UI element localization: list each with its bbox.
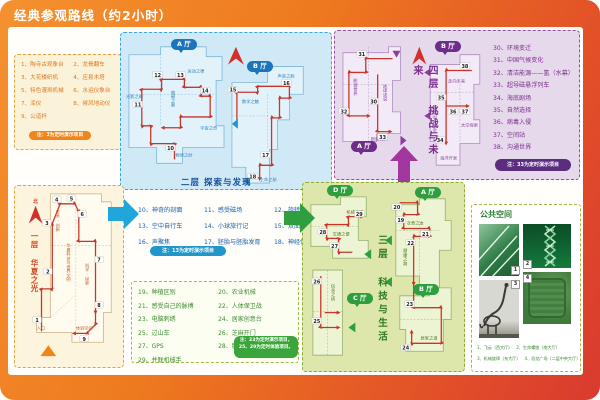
svg-text:7: 7 [97,258,101,264]
route-stop: 27 [330,242,340,249]
zone-label: 能源世界 [352,77,357,97]
svg-text:29: 29 [356,212,363,218]
hall-badge-a: A 厅 [171,39,197,50]
svg-text:12: 12 [154,73,161,79]
north-arrow-icon [412,47,426,65]
list-item: 37、空间站 [493,130,579,142]
zone-label: 走向未来 [448,77,466,84]
floor2-note-badge: 注：13为定时演示项目 [150,246,226,256]
floor1-exhibit-list: 1、陶寺古观象台 2、龙骨翻车 3、大花楼织机 4、应县木塔 5、特色灌溉机械 … [14,54,122,150]
svg-text:4: 4 [55,197,59,203]
escalator-icon [41,345,57,356]
caption: 2、生命螺旋（南大厅） [516,345,559,350]
list-item: 5、特色灌溉机械 [21,86,73,94]
zone-label: 衣食之本 [407,220,425,227]
route-stop: 1 [33,317,42,324]
list-item: 3、大花楼织机 [21,73,73,81]
hall-badge-b: B 厅 [247,61,273,72]
floor2-title: 二层 探索与发现 [181,176,251,188]
svg-text:13: 13 [177,73,184,79]
zone-label: 居家之道 [421,334,439,341]
public-space-title: 公共空间 [480,209,512,220]
flow-arrow-floor1-to-floor2 [108,198,140,230]
public-space-photos: 1 2 3 4 [479,222,575,340]
zone-label: 声音之韵 [278,72,295,79]
svg-text:8: 8 [97,303,101,309]
svg-text:31: 31 [358,52,365,58]
svg-text:1: 1 [35,318,39,324]
list-item: 27、GPS [138,341,218,350]
route-stop: 23 [405,301,415,308]
floor3-note-badge: 注：23为定时演示项目，25、29为定时体验项目。 [234,336,298,358]
caption: 3、机械旋律（东大厅） [477,356,520,361]
floor1-note-badge: 注：3为定时演示项目 [29,131,91,140]
svg-text:10: 10 [167,146,174,152]
north-arrow-icon [29,206,43,224]
list-item: 9、公道杯 [21,112,73,120]
list-item: 8、候风地动仪 [73,99,116,107]
zone-label: 太空探索 [461,122,478,129]
public-space-captions: 1、飞云（西大厅）2、生命螺旋（南大厅） 3、机械旋律（东大厅）4、恐龙广场（二… [477,342,579,364]
route-stop: 16 [281,79,291,86]
zone-label: 体验空间 [76,324,93,331]
zone-label: 信息之桥 [330,283,335,303]
route-stop: 14 [200,87,210,94]
list-item: 24、居家创意台 [218,314,292,323]
route-stop: 28 [318,229,328,236]
flow-arrow-floor2-to-floor3 [284,202,316,234]
svg-text:33: 33 [379,135,386,141]
svg-text:28: 28 [319,230,326,236]
hall-badge-b: B 厅 [435,41,461,52]
svg-text:11: 11 [134,103,141,109]
route-stop: 29 [354,211,364,218]
list-item: 20、农业机械 [218,287,292,296]
route-stop: 11 [133,101,143,108]
floor4-exhibit-list: 30、环境变迁 31、中国气候变化 32、清洁能源——氢（水幕） 33、超导磁悬… [493,43,579,155]
route-stop: 37 [460,108,470,115]
route-stop: 2 [43,268,52,275]
list-item: 38、沟通世界 [493,142,579,154]
zone-label: 物质之妙 [175,151,193,158]
north-arrow-icon [228,47,244,65]
route-stop: 8 [95,302,104,309]
list-item: 34、海底剧场 [493,93,579,105]
svg-text:21: 21 [422,232,429,238]
zone-label: 技术·创新 [55,208,61,233]
public-space-box: 公共空间 [471,204,581,372]
zone-label: 科学·探索 [84,262,90,286]
route-stop: 12 [153,72,163,79]
floor1-title: 一层 华夏之光 [29,232,40,302]
museum-route-map: 经典参观路线（约2小时） 1、陶寺古观象台 2、龙骨翻车 3、大花楼织机 4、应… [0,0,600,400]
floor2-panel: 光影之绚 电磁之奥 运动之律 宇宙之奇 物质之妙 数学之魅 声音之韵 生命之秘 … [120,32,332,190]
list-item: 17、胚胎与胚胎发育 [204,237,274,246]
floor4-panel: 能源世界 地球述说 新型材料 走向未来 基因·生命 太空探索 海洋开发 31 3… [334,30,580,180]
route-stop: 13 [175,72,185,79]
route-stop: 3 [42,220,51,227]
list-item: 36、病毒入侵 [493,117,579,129]
photo-tag: 3 [511,280,520,289]
route-stop: 10 [166,145,176,152]
caption: 1、飞云（西大厅） [477,345,512,350]
list-item: 13、空中自行车 [138,221,204,230]
route-stop: 4 [52,196,61,203]
route-stop: 26 [312,278,322,285]
svg-text:14: 14 [202,89,209,95]
route-stop: 33 [378,134,388,141]
route-stop: 9 [80,335,89,342]
route-stop: 21 [421,230,431,237]
svg-text:19: 19 [397,218,404,224]
zone-label: 海洋开发 [440,154,458,161]
list-item: 23、电脑刺绣 [138,314,218,323]
zone-label: 运动之律 [187,68,205,75]
hall-badge-a: A 厅 [351,141,377,152]
floor2-floorplan: 光影之绚 电磁之奥 运动之律 宇宙之奇 物质之妙 数学之魅 声音之韵 生命之秘 … [121,33,331,189]
route-stop: 24 [401,344,411,351]
svg-text:25: 25 [313,319,320,325]
route-stop: 36 [448,108,458,115]
photo-tag: 2 [523,260,532,269]
svg-text:5: 5 [70,196,74,202]
route-stop: 32 [339,108,349,115]
svg-text:32: 32 [340,109,347,115]
floor4-note-badge: 注：33为定时演示项目 [495,159,571,171]
route-stop: 15 [228,86,238,93]
svg-text:9: 9 [83,337,87,343]
escalator-icon [348,323,355,333]
route-stop: 38 [460,63,470,70]
list-item: 4、应县木塔 [73,73,116,81]
svg-text:17: 17 [262,153,269,159]
zone-label: 生命之秘 [260,176,278,183]
svg-text:37: 37 [461,109,468,115]
route-stop: 17 [261,151,271,158]
list-item: 10、神奇的剖面 [138,205,204,214]
route-stop: 31 [357,51,367,58]
route-stop: 20 [392,204,402,211]
photo-tag: 4 [523,274,532,283]
svg-text:16: 16 [283,81,290,87]
zone-label: 宇宙之奇 [200,125,218,132]
caption: 4、恐龙广场（二层中央大厅） [524,356,580,361]
svg-text:20: 20 [393,205,400,211]
hall-badge-c: C 厅 [347,293,373,304]
list-item: 1、陶寺古观象台 [21,60,73,68]
zone-label: 光影之绚 [126,93,144,100]
zone-label: 交通之便 [333,230,351,237]
svg-text:2: 2 [46,270,49,276]
list-item: 11、感受磁场 [204,205,274,214]
list-item: 30、环境变迁 [493,43,579,55]
floor3-exhibit-list: 19、种植区别 20、农业机械 21、感受自己的脉搏 22、人体保卫战 23、电… [131,281,299,363]
svg-text:27: 27 [331,244,338,250]
zone-label: 电磁之奥 [170,89,175,109]
floor3-title: 三层 科技与生活 [374,235,388,345]
hall-badge-a: A 厅 [415,187,441,198]
route-stop: 19 [396,217,406,224]
list-item: 31、中国气候变化 [493,55,579,67]
list-item: 35、自然选择 [493,105,579,117]
hall-badge-d: D 厅 [327,185,353,196]
list-item: 22、人体保卫战 [218,301,292,310]
svg-text:24: 24 [402,346,409,352]
svg-text:22: 22 [407,241,414,247]
svg-text:38: 38 [461,64,468,70]
svg-text:23: 23 [406,302,413,308]
route-stop: 22 [406,239,416,246]
flow-arrow-floor3-to-floor4 [390,146,418,182]
route-stop: 30 [369,98,379,105]
route-stop: 6 [78,211,87,218]
zone-label: 入口 [37,325,45,330]
svg-text:15: 15 [229,88,236,94]
escalator-icon [400,136,406,146]
list-item: 33、超导磁悬浮列车 [493,80,579,92]
list-item: 29、并联机械手 [138,355,218,364]
zone-label: 地球述说 [382,83,387,103]
hall-badge-b: B 厅 [413,284,439,295]
list-item: 7、浑仪 [21,99,73,107]
zone-label: 数学之魅 [242,98,260,105]
svg-text:6: 6 [81,212,85,218]
svg-text:30: 30 [370,100,377,106]
route-stop: 5 [67,195,76,202]
route-stop: 25 [312,318,322,325]
list-item: 14、小球旅行记 [204,221,274,230]
page-title: 经典参观路线（约2小时） [14,5,172,24]
list-item: 21、感受自己的脉搏 [138,301,218,310]
list-item: 6、水运仪象台 [73,86,116,94]
floor3-panel: 交通之便 机械之巧 衣食之本 健康之路 居家之道 信息之桥 20 19 21 2… [302,182,465,372]
list-item: 25、过山车 [138,328,218,337]
list-item: 32、清洁能源——氢（水幕） [493,68,579,80]
zone-label: 健康之路 [402,247,407,267]
svg-text:26: 26 [313,279,320,285]
photo-tag: 1 [511,266,520,275]
zone-label: 华夏科技与世界文明 [66,242,72,283]
route-stop: 7 [95,256,104,263]
svg-text:3: 3 [45,221,49,227]
list-item: 16、声聚焦 [138,237,204,246]
north-label: 北 [33,198,38,205]
list-item: 19、种植区别 [138,287,218,296]
svg-text:36: 36 [450,109,457,115]
list-item: 2、龙骨翻车 [73,60,116,68]
